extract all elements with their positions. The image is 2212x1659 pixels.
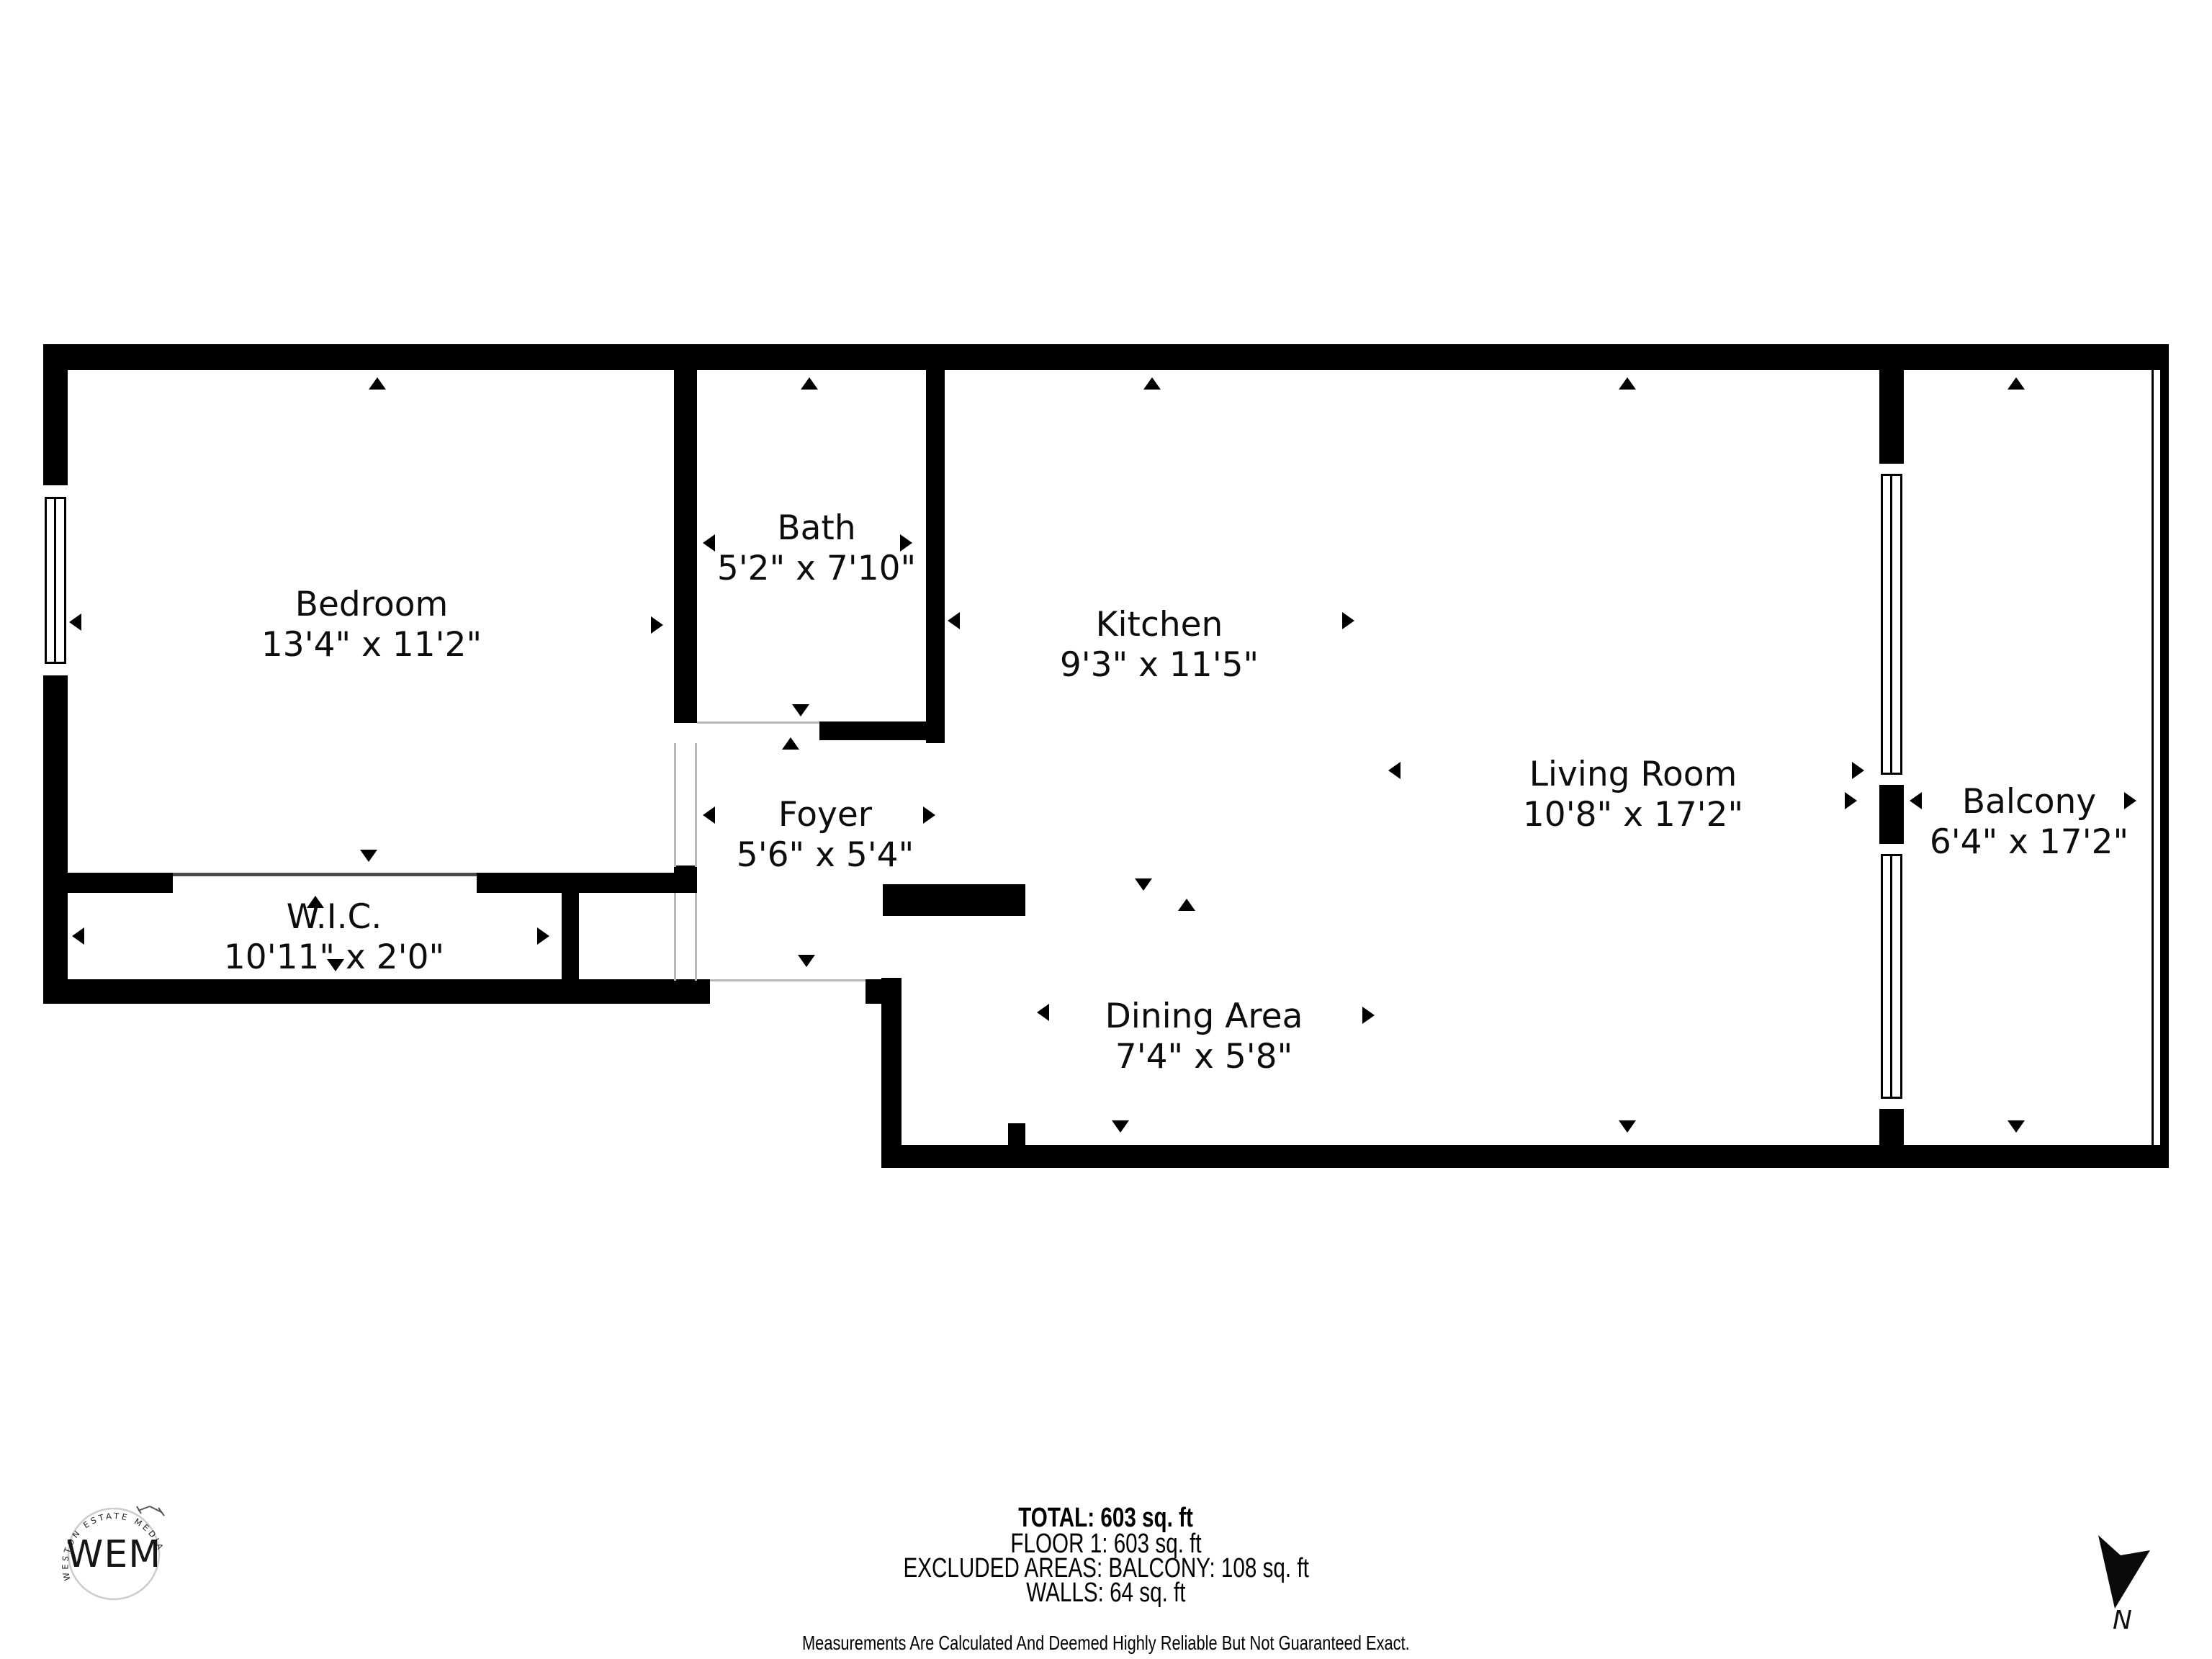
arrow-left-icon: [948, 612, 960, 629]
entry-door-opening-line: [710, 979, 866, 981]
room-label-kitchen: Kitchen 9'3" x 11'5": [1060, 605, 1259, 685]
foyer-passage-line-right: [695, 893, 697, 981]
arrow-left-icon: [703, 806, 715, 824]
footer-total: TOTAL: 603 sq. ft: [242, 1503, 1970, 1532]
room-dims: 5'2" x 7'10": [717, 549, 916, 588]
arrow-right-icon: [1362, 1007, 1375, 1024]
bath-door-opening-line: [697, 721, 819, 724]
arrow-right-icon: [1845, 792, 1857, 809]
arrow-down-icon: [1619, 1120, 1636, 1133]
arrow-up-icon: [801, 377, 818, 390]
arrow-down-icon: [798, 955, 815, 967]
room-dims: 7'4" x 5'8": [1115, 1037, 1292, 1076]
balcony-railing-inner-line: [2152, 370, 2154, 1168]
footer-walls: WALLS: 64 sq. ft: [242, 1578, 1970, 1607]
room-name: W.I.C.: [287, 897, 382, 937]
room-name: Dining Area: [1105, 997, 1303, 1036]
arrow-up-icon: [1178, 899, 1195, 911]
room-name: Foyer: [778, 795, 872, 835]
room-dims: 13'4" x 11'2": [261, 625, 482, 665]
room-label-balcony: Balcony 6'4" x 17'2": [1930, 782, 2128, 863]
wall-bedroom-bath-divider: [674, 370, 697, 723]
room-dims: 10'8" x 17'2": [1523, 795, 1743, 835]
room-name: Living Room: [1529, 755, 1737, 794]
wall-balcony-divider-mid: [1879, 785, 1904, 844]
logo-monogram: WEM: [66, 1533, 161, 1576]
wall-outer-bottom: [883, 1145, 2169, 1168]
wall-wic-top-right: [477, 873, 674, 893]
arrow-right-icon: [923, 806, 935, 824]
bedroom-window-mullion: [54, 497, 56, 664]
room-dims: 5'6" x 5'4": [737, 835, 914, 875]
room-name: Bath: [777, 508, 855, 548]
wall-balcony-divider-bottom: [1879, 1109, 1904, 1168]
room-label-living-room: Living Room 10'8" x 17'2": [1523, 755, 1743, 835]
room-label-wic: W.I.C. 10'11" x 2'0": [224, 897, 444, 978]
footer-disclaimer-text: Measurements Are Calculated And Deemed H…: [802, 1629, 1410, 1658]
north-arrow-icon: [2098, 1535, 2150, 1609]
north-label: N: [2113, 1606, 2132, 1635]
arrow-left-icon: [69, 613, 81, 631]
arrow-up-icon: [369, 377, 386, 390]
arrow-left-icon: [72, 927, 84, 945]
room-name: Bedroom: [295, 585, 449, 624]
wem-logo: WESTON ESTATE MEDIA WEM: [55, 1492, 177, 1614]
arrow-right-icon: [651, 616, 663, 634]
wall-balcony-divider-top: [1879, 370, 1904, 464]
drone-icon: [137, 1506, 164, 1516]
bedroom-door-line-left: [674, 743, 676, 867]
room-label-bath: Bath 5'2" x 7'10": [717, 508, 916, 589]
balcony-window-upper-mullion: [1890, 474, 1892, 775]
arrow-left-icon: [703, 534, 715, 552]
arrow-down-icon: [2008, 1120, 2025, 1133]
arrow-up-icon: [2008, 377, 2025, 390]
wall-wic-right: [562, 893, 579, 979]
arrow-up-icon: [1619, 377, 1636, 390]
arrow-right-icon: [1852, 762, 1864, 779]
room-label-bedroom: Bedroom 13'4" x 11'2": [261, 585, 482, 665]
arrow-down-icon: [1135, 878, 1152, 891]
arrow-left-icon: [1910, 792, 1922, 809]
balcony-window-lower-mullion: [1890, 854, 1892, 1099]
room-dims: 10'11" x 2'0": [224, 938, 444, 977]
wall-bedroom-foyer-stub: [674, 866, 697, 893]
arrow-up-icon: [782, 737, 799, 750]
floor-plan-page: Bedroom 13'4" x 11'2" Bath 5'2" x 7'10" …: [0, 0, 2212, 1659]
north-compass: N: [2081, 1519, 2212, 1642]
foyer-passage-line-left: [674, 893, 676, 981]
arrow-right-icon: [1342, 612, 1354, 629]
room-label-dining-area: Dining Area 7'4" x 5'8": [1105, 997, 1303, 1077]
wall-outer-left-upper: [43, 344, 68, 485]
balcony-railing-outer: [2160, 370, 2169, 1168]
wall-bath-bottom: [819, 721, 926, 740]
wall-dining-stub: [883, 884, 1025, 916]
room-name: Balcony: [1962, 782, 2096, 822]
wall-dining-door-jamb: [1008, 1123, 1025, 1168]
arrow-up-icon: [1143, 377, 1161, 390]
room-dims: 9'3" x 11'5": [1060, 645, 1259, 685]
room-dims: 6'4" x 17'2": [1930, 822, 2128, 862]
room-label-foyer: Foyer 5'6" x 5'4": [737, 795, 914, 876]
arrow-left-icon: [1388, 762, 1401, 779]
footer-disclaimer: Measurements Are Calculated And Deemed H…: [242, 1629, 1970, 1658]
footer-total-text: TOTAL: 603 sq. ft: [1019, 1503, 1194, 1532]
room-name: Kitchen: [1096, 605, 1223, 644]
arrow-down-icon: [1112, 1120, 1129, 1133]
wall-bath-right: [926, 370, 945, 743]
arrow-down-icon: [792, 704, 809, 716]
arrow-left-icon: [1037, 1004, 1049, 1021]
arrow-down-icon: [360, 850, 377, 862]
wall-entry-connector: [881, 978, 902, 1168]
wall-wic-top-left: [68, 873, 173, 893]
arrow-right-icon: [537, 927, 549, 945]
wic-sliding-door: [173, 873, 477, 876]
wall-outer-top: [43, 344, 2169, 370]
wall-left-section-bottom: [43, 979, 710, 1004]
bedroom-door-line-right: [695, 743, 697, 867]
wall-outer-left-lower: [43, 675, 68, 1004]
footer-walls-text: WALLS: 64 sq. ft: [1026, 1578, 1185, 1607]
